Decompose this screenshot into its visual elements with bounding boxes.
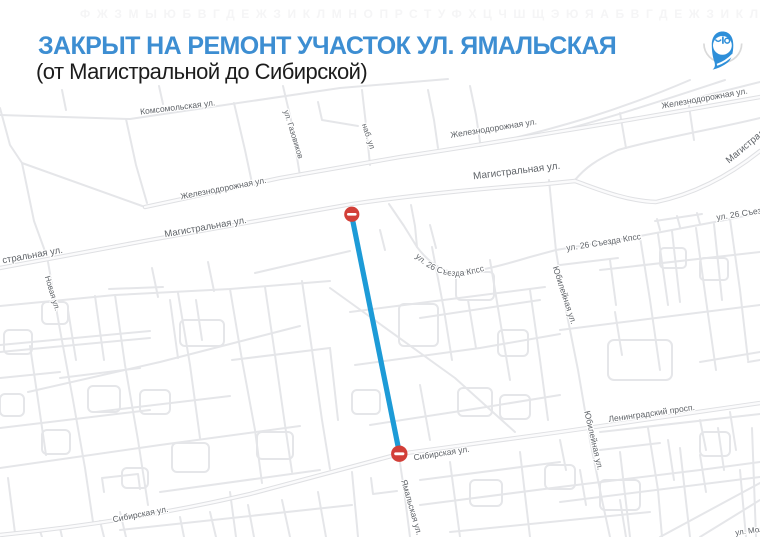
svg-text:Сибирская ул.: Сибирская ул. xyxy=(112,504,169,525)
svg-text:Юбилейная ул.: Юбилейная ул. xyxy=(551,265,579,326)
svg-text:Магистральная ул.: Магистральная ул. xyxy=(473,161,561,183)
svg-text:Ямальская ул.: Ямальская ул. xyxy=(399,478,424,536)
svg-text:Юбилейная ул.: Юбилейная ул. xyxy=(582,410,605,471)
svg-text:Новая ул.: Новая ул. xyxy=(43,275,62,312)
svg-text:ул. 26 Съезда: ул. 26 Съезда xyxy=(716,204,760,223)
svg-text:наб. ул: наб. ул xyxy=(360,122,377,150)
svg-text:ул. Газовиков: ул. Газовиков xyxy=(282,109,305,160)
svg-text:Комсомольская ул.: Комсомольская ул. xyxy=(140,97,216,116)
svg-text:Железнодорожная ул.: Железнодорожная ул. xyxy=(180,175,268,201)
svg-text:Магистраль: Магистраль xyxy=(724,124,760,166)
svg-text:Магистральная ул.: Магистральная ул. xyxy=(164,215,248,240)
svg-text:ул. 26 Съезда Кпсс: ул. 26 Съезда Кпсс xyxy=(566,231,643,253)
svg-text:ул. 26 Съезда Кпсс: ул. 26 Съезда Кпсс xyxy=(414,251,486,278)
